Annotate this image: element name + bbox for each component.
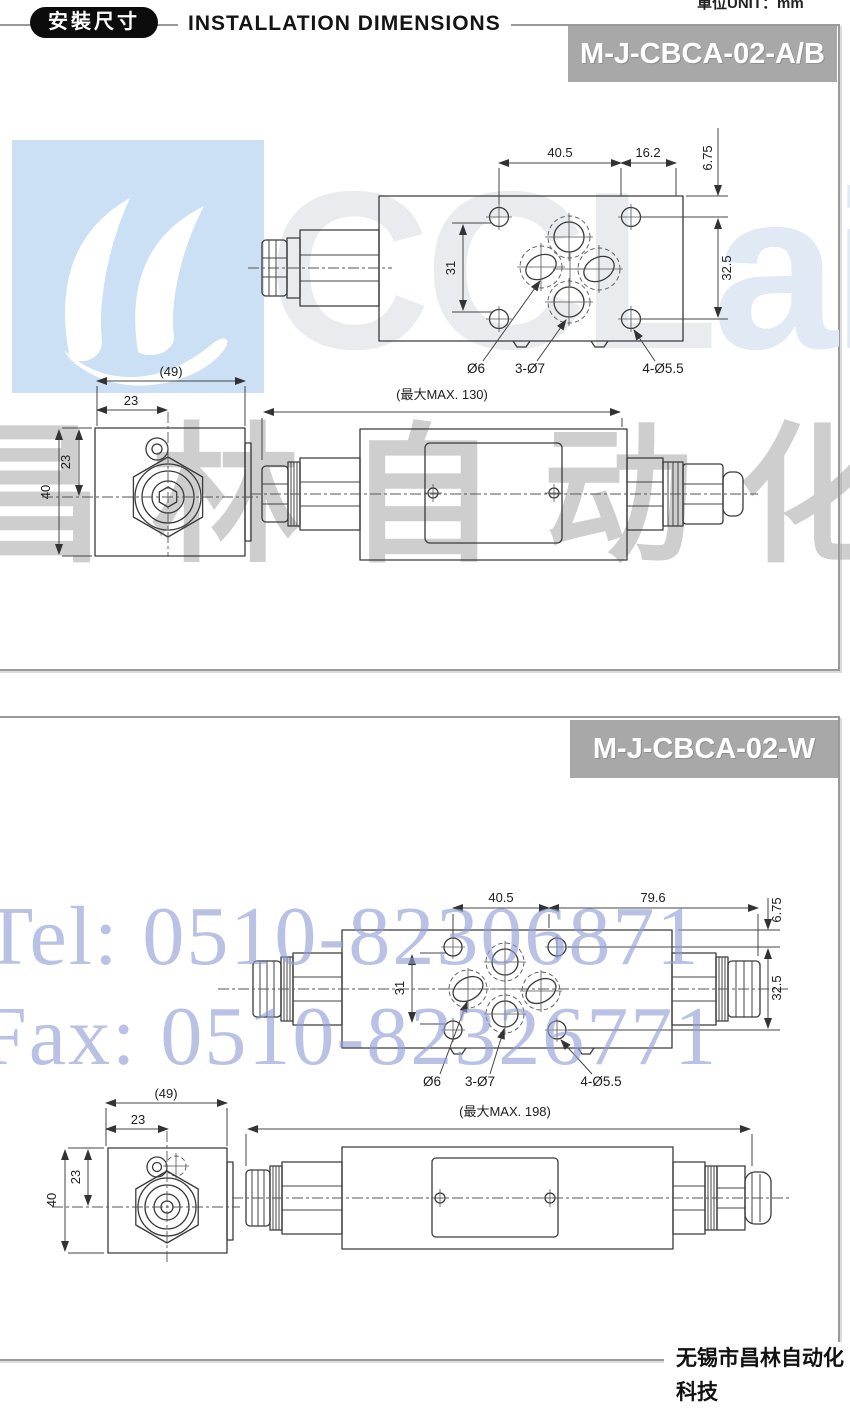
- p1-dim-40-5: 40.5: [547, 145, 572, 160]
- p1-end-view: (49) 23 40 23: [38, 364, 258, 556]
- p1-label-port: Ø6: [467, 361, 485, 376]
- p2-dim-23v: 23: [68, 1170, 83, 1184]
- p2-dim-40: 40: [44, 1193, 59, 1207]
- p1-dim-23h: 23: [124, 393, 138, 408]
- page: { "page": { "unit_label": "單位UNIT：mm", "…: [0, 0, 850, 1384]
- section-badge: 安裝尺寸: [30, 7, 158, 38]
- p1-dim-6-75: 6.75: [700, 145, 715, 170]
- p1-dim-23v: 23: [58, 455, 73, 469]
- p1-dim-32-5: 32.5: [719, 255, 734, 280]
- p1-dim-31: 31: [443, 261, 458, 275]
- p2-side-view: (最大MAX. 198): [232, 1104, 792, 1249]
- footer-company: 无锡市昌林自动化科技: [664, 1342, 850, 1376]
- p2-dim-49: (49): [154, 1086, 177, 1101]
- p1-dim-49: (49): [159, 364, 182, 379]
- p2-dim-max: (最大MAX. 198): [459, 1104, 551, 1119]
- tel-watermark: Tel: 0510-82306871: [0, 888, 700, 985]
- unit-label: 單位UNIT：mm: [697, 0, 804, 13]
- p1-side-view: (最大MAX. 130): [250, 387, 758, 560]
- p1-dim-16-2: 16.2: [635, 145, 660, 160]
- fax-watermark: Fax: 0510-82326771: [0, 988, 718, 1085]
- p1-label-3ports: 3-Ø7: [515, 361, 545, 376]
- p1-dim-max: (最大MAX. 130): [396, 387, 488, 402]
- page-title: INSTALLATION DIMENSIONS: [178, 9, 511, 39]
- p2-dim-32-5: 32.5: [769, 975, 784, 1000]
- model-banner-1: M-J-CBCA-02-A/B: [568, 26, 837, 82]
- p1-top-view: 40.5 16.2 6.75 32.5 31 Ø6 3-Ø7 4-Ø5.5: [248, 128, 734, 376]
- p2-dim-6-75: 6.75: [769, 897, 784, 922]
- model-banner-2: M-J-CBCA-02-W: [570, 720, 838, 778]
- p2-dim-23h: 23: [131, 1112, 145, 1127]
- p1-ports: [517, 213, 623, 326]
- panel1-drawings: 40.5 16.2 6.75 32.5 31 Ø6 3-Ø7 4-Ø5.5 (4…: [0, 100, 850, 670]
- p1-label-bolts: 4-Ø5.5: [642, 361, 683, 376]
- p2-end-view: (49) 23 40 23: [44, 1086, 240, 1262]
